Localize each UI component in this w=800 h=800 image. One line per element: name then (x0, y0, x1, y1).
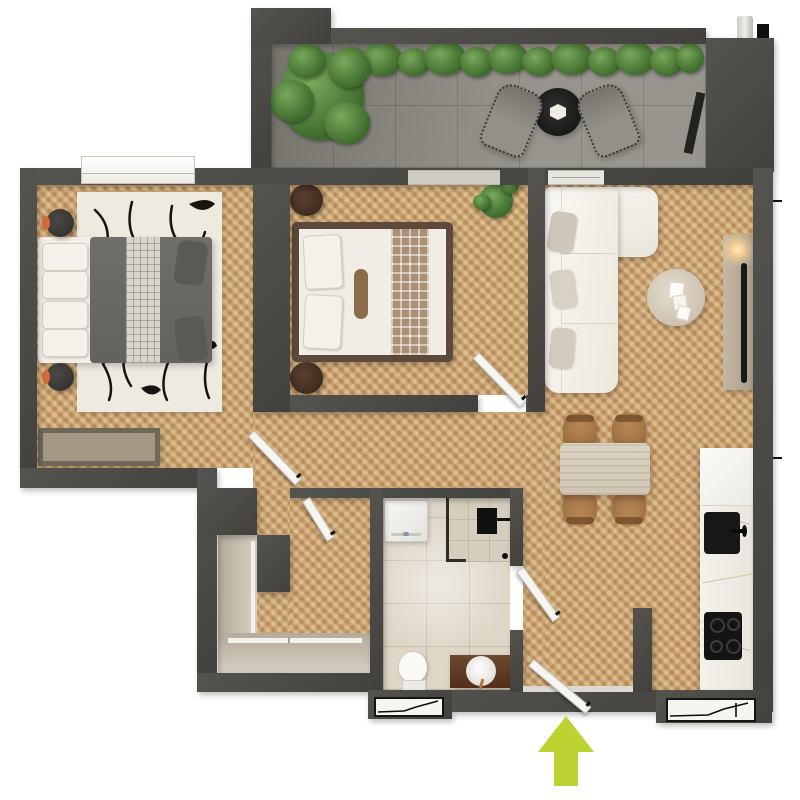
coffee-table-papers (675, 305, 691, 322)
balcony-tree-plant (272, 46, 372, 148)
media-console (723, 235, 753, 390)
wall-closet-stub (257, 535, 290, 592)
washing-machine (384, 500, 428, 542)
wall-balcony-corner-block (251, 8, 331, 44)
wall-left-upper (20, 168, 37, 488)
roof-vent-box (757, 24, 769, 40)
bed1-pillow (42, 301, 88, 329)
sink-faucet-base (742, 525, 747, 537)
corridor-passage-floor (257, 488, 290, 535)
kitchen-tall-cabinet (700, 448, 753, 506)
bedroom1-bed (38, 237, 212, 363)
bed1-pillow (42, 243, 88, 271)
dining-chair (612, 413, 646, 445)
wall-balcony-top (331, 28, 706, 44)
entry-mid-floor (257, 592, 290, 633)
coffee-table (647, 269, 705, 326)
entrance-arrow-shaft (554, 751, 578, 786)
wall-bedroom1-bottom (20, 468, 217, 488)
bed2-runner (391, 229, 429, 355)
bed1-throw-pillow (173, 315, 208, 362)
bed2-pillow (303, 294, 344, 350)
window-bottom-right (666, 698, 756, 722)
wall-left-lower (197, 468, 217, 675)
entrance-threshold (523, 686, 633, 692)
bedroom2-bed (292, 222, 453, 362)
wall-bathroom-top (290, 488, 523, 498)
outdoor-table (534, 88, 582, 136)
entrance-arrow (538, 716, 594, 786)
dining-chair (563, 494, 597, 526)
tv-screen (741, 263, 747, 383)
bed2-bolster-pillow (354, 269, 368, 319)
shower-hinge (502, 553, 508, 559)
water-heater (726, 55, 758, 101)
sofa-pillow (549, 269, 577, 310)
hall-strip-floor (523, 412, 545, 690)
bathroom-vanity (450, 655, 510, 688)
dining-chair (612, 494, 646, 526)
utility-door-frame (707, 90, 712, 150)
balcony-sliding-door (548, 170, 604, 185)
wall-bathroom-left (370, 488, 383, 690)
wall-bathroom-right-lower (510, 630, 523, 692)
dimension-tick (773, 200, 782, 202)
shower-glass-return (446, 559, 466, 562)
wall-living-divider (528, 168, 545, 412)
wardrobe-horizontal (218, 633, 370, 675)
console-lamp (729, 241, 746, 258)
bedroom1-window (81, 156, 195, 184)
bedroom1-nightstand-top (46, 209, 74, 237)
wall-entry-block (197, 488, 257, 535)
vent-pipe (737, 16, 753, 42)
wall-right (753, 168, 773, 712)
bedroom2-nightstand-top (290, 184, 323, 216)
dining-table (560, 443, 650, 495)
wall-bathroom-right-upper (510, 488, 523, 566)
bed1-runner (126, 237, 160, 363)
shower-glass-panel (446, 498, 449, 562)
bed1-pillow (42, 329, 88, 357)
bedroom2-nightstand-bottom (290, 362, 323, 394)
bedroom2-balcony-window (408, 170, 500, 185)
shower-head (477, 508, 497, 534)
bed2-pillow (303, 234, 344, 290)
sofa-pillow (548, 327, 575, 369)
toilet (398, 652, 428, 690)
kitchen-cooktop (704, 612, 742, 660)
bedroom2-potted-plant (477, 182, 515, 220)
bedroom1-nightstand-bottom (46, 363, 74, 391)
bedroom1-storage-bench (38, 428, 160, 466)
dining-chair (563, 413, 597, 445)
outdoor-table-decor (550, 104, 566, 120)
wall-bedroom2-bottom (290, 395, 478, 412)
wall-bedrooms-divider (253, 185, 290, 412)
wall-bedroom2-bottom-right (526, 395, 545, 412)
heater-dial (736, 85, 750, 99)
dimension-tick (773, 457, 782, 459)
floor-plan (0, 0, 800, 800)
kitchen-sink (704, 512, 740, 554)
bed1-throw-pillow (173, 239, 209, 287)
wall-closet-bottom (197, 673, 383, 692)
window-bottom-left (374, 697, 444, 717)
bed1-pillow (42, 271, 88, 299)
wall-balcony-left (251, 8, 271, 168)
entrance-arrow-head (538, 716, 594, 752)
